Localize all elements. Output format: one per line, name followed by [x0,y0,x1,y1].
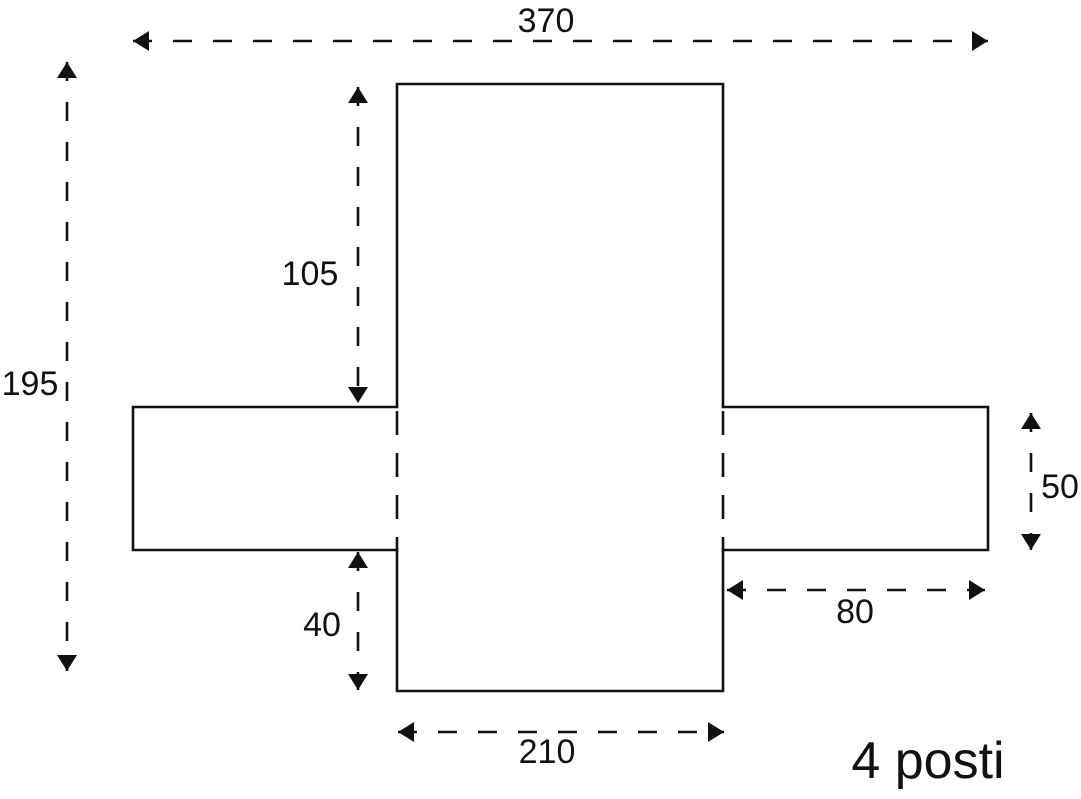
dim-side-flap-height-label: 50 [1041,468,1079,506]
cover-seam-dashed [397,407,723,550]
dimension-diagram: 370 195 105 40 50 80 210 [0,0,1081,799]
dim-seat-width: 210 [398,732,724,771]
caption-seats: 4 posti [851,732,1004,790]
dim-total-height-label: 195 [2,365,59,403]
dim-total-width-label: 370 [518,2,575,40]
dim-upper-drop-label: 105 [282,255,339,293]
dim-side-flap-width: 80 [727,590,985,631]
dim-total-width: 370 [133,2,988,41]
dim-upper-drop: 105 [282,87,358,403]
dim-seat-width-label: 210 [519,733,576,771]
diagram-svg: 370 195 105 40 50 80 210 [0,0,1081,799]
dim-total-height: 195 [2,62,67,671]
dim-lower-drop-label: 40 [303,606,341,644]
dim-side-flap-width-label: 80 [836,593,874,631]
dim-side-flap-height: 50 [1031,413,1079,550]
dim-lower-drop: 40 [303,552,358,690]
